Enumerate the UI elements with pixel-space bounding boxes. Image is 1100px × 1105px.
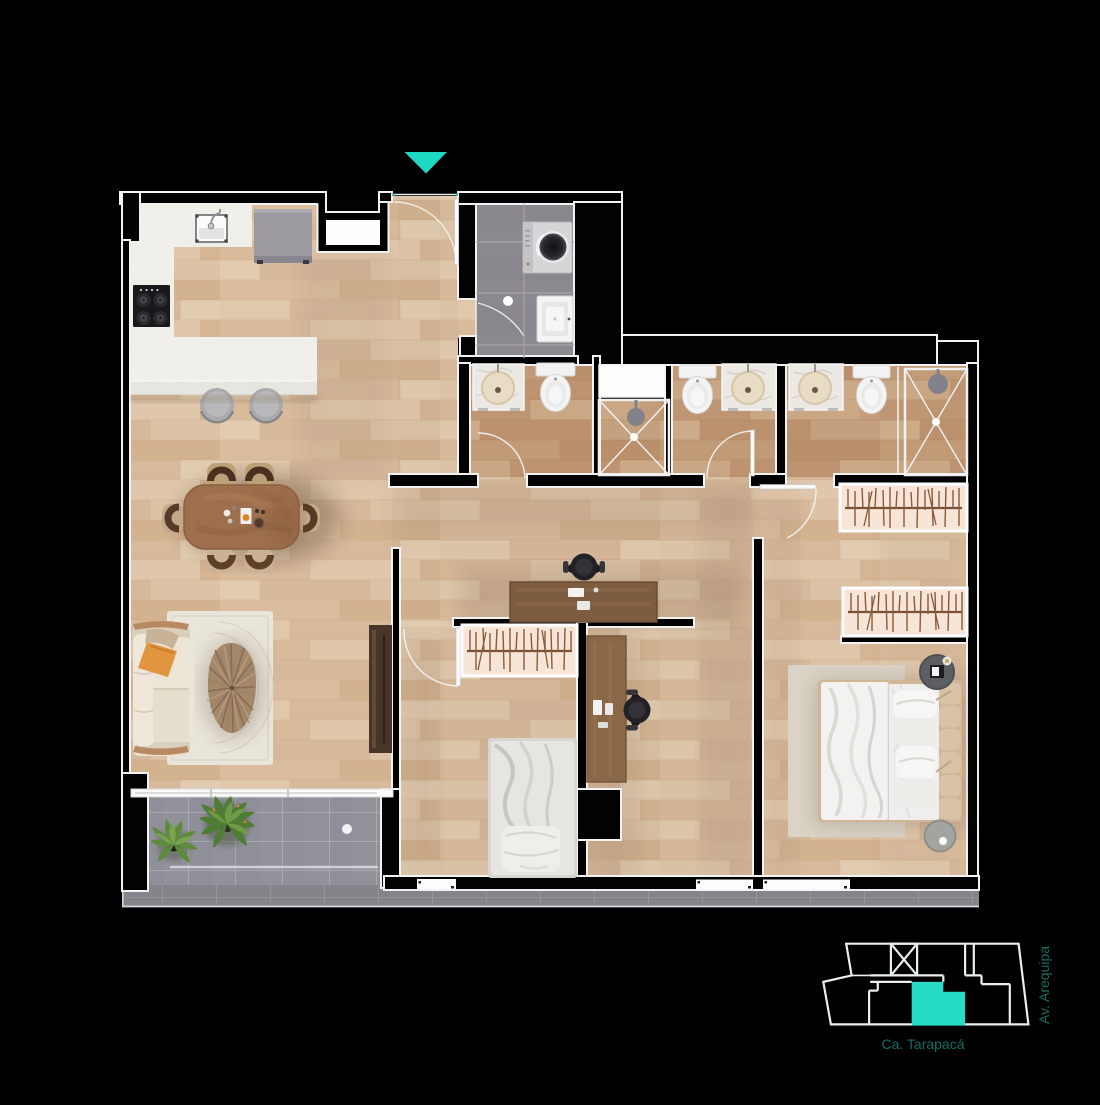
svg-text:Av. Arequipa: Av. Arequipa [1036, 946, 1052, 1024]
svg-text:Ca. Tarapacá: Ca. Tarapacá [881, 1036, 964, 1052]
